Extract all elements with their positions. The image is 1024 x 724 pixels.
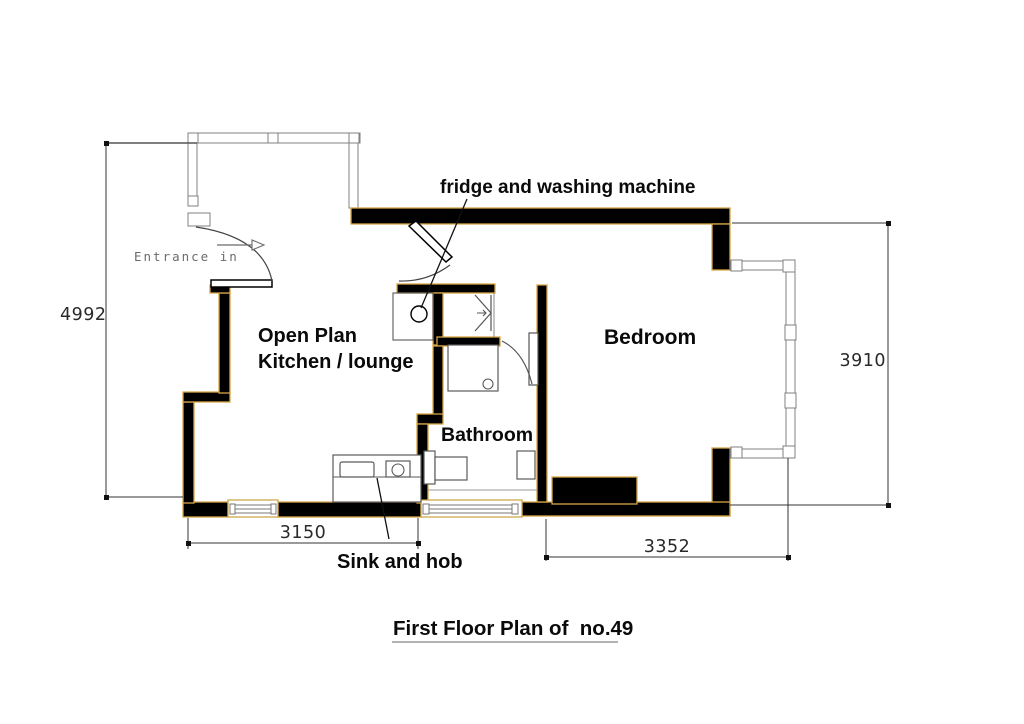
closet-door (399, 221, 452, 281)
porch-post (188, 196, 198, 206)
bay-post (731, 447, 742, 458)
fridge-washer-recess (393, 293, 433, 340)
wall-chimney-protrusion (552, 477, 637, 504)
floor-plan-canvas: 4992 3910 3150 3352 fridge and washing m… (0, 0, 1024, 724)
kitchen-window (228, 500, 278, 517)
door-swing-arc (399, 265, 450, 281)
porch-post (268, 133, 278, 143)
dimension-tick (544, 555, 549, 560)
dimension-tick (186, 541, 191, 546)
title-block: First Floor Plan of no.49 (392, 617, 633, 642)
page-title: First Floor Plan of no.49 (393, 617, 633, 640)
label-appliances: fridge and washing machine (440, 177, 696, 198)
appliance-circle-icon (411, 306, 427, 322)
bay-post (731, 260, 742, 271)
dimension-left: 4992 (60, 141, 197, 500)
porch-nib (188, 213, 210, 226)
wall-closet-top (397, 284, 495, 293)
sink-basin-icon (340, 462, 374, 477)
bathroom-door (502, 333, 538, 385)
dimension-tick (104, 495, 109, 500)
wall-bathroom-bedroom (537, 285, 547, 502)
dimension-tick (104, 141, 109, 146)
label-bedroom: Bedroom (604, 326, 696, 349)
bathroom-window (421, 500, 522, 517)
bay-post (783, 446, 795, 458)
porch-wall-right (349, 143, 358, 208)
dimension-value-left: 4992 (60, 305, 107, 325)
porch-structure (188, 133, 360, 226)
label-open-plan-line1: Open Plan (258, 325, 357, 347)
label-entrance-in: Entrance in (134, 249, 239, 264)
window-post (230, 504, 235, 514)
wall-kitchen-bottom-mid (278, 502, 421, 517)
floor-plan-drawing: 4992 3910 3150 3352 fridge and washing m… (0, 0, 1024, 724)
door-swing-arc (502, 341, 532, 384)
washbasin (517, 451, 535, 479)
wall-kitchen-bottom-left (183, 502, 228, 517)
toilet-cistern (424, 451, 435, 484)
arrow-head-icon (252, 240, 264, 250)
wall-bathroom-step (417, 414, 443, 424)
bifold-arrow-icon (477, 310, 486, 316)
door-leaf (409, 221, 452, 262)
bifold-door (475, 293, 494, 337)
bay-window (730, 260, 796, 458)
wall-top (351, 208, 730, 224)
dimension-tick (886, 503, 891, 508)
wall-left-upper (219, 293, 230, 393)
window-post (423, 504, 429, 514)
bay-mullion (785, 325, 796, 340)
dimension-value-bedroom: 3352 (644, 537, 691, 557)
shower-tray (448, 345, 498, 391)
dimension-tick (886, 221, 891, 226)
window-post (512, 504, 518, 514)
bay-post (783, 260, 795, 272)
dimension-value-right: 3910 (839, 351, 886, 371)
door-leaf (211, 280, 272, 287)
hob-outline (386, 461, 410, 477)
porch-post (188, 133, 198, 143)
label-bathroom: Bathroom (441, 424, 533, 446)
dimension-tick (416, 541, 421, 546)
porch-wall-left (188, 143, 197, 196)
dimension-value-kitchen: 3150 (280, 523, 327, 543)
bay-mullion (785, 393, 796, 408)
toilet-bowl (435, 457, 467, 480)
bay-right (786, 261, 795, 458)
wall-bathroom-left-upper (433, 346, 443, 416)
dimension-line (106, 143, 183, 497)
porch-post (349, 133, 359, 143)
dimension-tick (786, 555, 791, 560)
wall-right-upper (712, 224, 730, 270)
window-post (271, 504, 276, 514)
wall-left-lower (183, 402, 194, 503)
label-open-plan-line2: Kitchen / lounge (258, 351, 414, 373)
label-sink-and-hob: Sink and hob (337, 551, 463, 573)
